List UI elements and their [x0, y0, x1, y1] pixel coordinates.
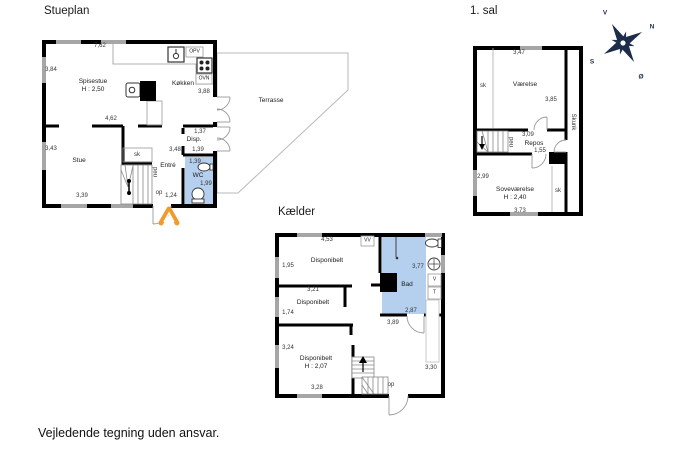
compass-south-label: S: [590, 59, 594, 66]
appliance-label-vv: VV: [364, 239, 371, 244]
room-label-wc: WC: [193, 173, 204, 180]
room-height-label: H : 2,40: [504, 195, 527, 202]
room-label-sovevaerelse: Soveværelse: [496, 187, 534, 194]
room-label-bad: Bad: [401, 282, 413, 289]
closet-label-sk: sk: [134, 152, 140, 158]
appliance-label-opv: OPV: [189, 50, 200, 55]
dim-label: 3,84: [45, 67, 57, 73]
dim-label: 4,53: [321, 237, 333, 243]
room-label-vaerelse: Værelse: [513, 82, 537, 89]
dim-label: 3,24: [282, 345, 294, 351]
chimney: [380, 273, 397, 292]
dim-label: 3,77: [412, 264, 424, 270]
dim-label: 3,43: [45, 146, 57, 152]
floorplan-drawing: Stueplan 1. sal Kælder Vejledende tegnin…: [0, 0, 687, 457]
dim-label: 3,09: [522, 132, 534, 138]
stairs-label-ned: ned: [153, 167, 159, 177]
dim-label: 3,85: [545, 97, 557, 103]
stairs-label-op: op: [388, 382, 395, 388]
room-label-disponibelt: Disponibelt: [311, 258, 343, 265]
room-label-repos: Repos: [525, 141, 544, 148]
compass-rose-icon: [593, 13, 653, 73]
room-height-label: H : 2,07: [305, 364, 328, 371]
stueplan-stairs: [121, 165, 152, 204]
dim-label: 7,62: [94, 43, 106, 49]
dim-label: 3,21: [307, 287, 319, 293]
compass-west-label: V: [603, 10, 607, 17]
dim-label: 2,99: [477, 174, 489, 180]
compass-north-label: N: [650, 24, 655, 31]
entrance-arrow-icon: [161, 209, 177, 223]
stairs-label-op: op: [156, 190, 163, 196]
dim-label: 2,87: [405, 308, 417, 314]
room-label-spisestue: Spisestue: [79, 79, 108, 86]
dim-label: 1,55: [534, 148, 546, 154]
closet-label-sk: sk: [480, 83, 486, 89]
appliance-label-t: T: [433, 291, 436, 296]
dim-label: 3,39: [76, 193, 88, 199]
disclaimer-text: Vejledende tegning uden ansvar.: [38, 426, 219, 440]
room-label-koekken: Køkken: [172, 81, 194, 88]
stairs-label-ned: ned: [509, 137, 515, 147]
basement-title: Kælder: [278, 206, 315, 218]
stueplan-title: Stueplan: [44, 5, 89, 17]
dim-label: 1,99: [200, 181, 212, 187]
dim-label: 3,88: [198, 89, 210, 95]
room-label-entre: Entré: [160, 163, 176, 170]
room-label-stue: Stue: [72, 158, 85, 165]
basement-plan: [275, 233, 445, 415]
dim-label: 3,47: [513, 50, 525, 56]
chimney: [549, 152, 566, 164]
dim-label: 1,95: [282, 263, 294, 269]
appliance-label-ovn: OVN: [199, 77, 210, 82]
dim-label: 3,28: [311, 385, 323, 391]
floorplan-svg: [0, 0, 687, 457]
firstfloor-title: 1. sal: [470, 5, 498, 17]
lightwell: [426, 300, 439, 362]
dim-label: 4,62: [105, 116, 117, 122]
dim-label: 1,24: [165, 193, 177, 199]
room-height-label: H : 2,50: [82, 87, 105, 94]
room-label-terrasse: Terrasse: [259, 98, 284, 105]
dim-label: 3,73: [514, 208, 526, 214]
closet-label-sk: sk: [555, 188, 561, 194]
dim-label: 1,39: [189, 159, 201, 165]
dim-label: 3,48: [169, 147, 181, 153]
room-label-disponibelt: Disponibelt: [300, 356, 332, 363]
kitchen-sink-icon: [168, 47, 184, 62]
room-label-disp: Disp.: [187, 137, 202, 144]
room-label-skunk: Skunk: [570, 114, 576, 131]
dim-label: 1,74: [282, 310, 294, 316]
compass-east-label: Ø: [638, 74, 643, 81]
terrace-outline: [217, 53, 348, 193]
toilet-icon: [426, 239, 439, 247]
dim-label: 3,30: [425, 365, 437, 371]
dim-label: 3,89: [387, 320, 399, 326]
dim-label: 1,37: [194, 129, 206, 135]
wc-toilet-icon: [192, 188, 204, 200]
room-label-disponibelt: Disponibelt: [297, 300, 329, 307]
dim-label: 1,39: [192, 147, 204, 153]
appliance-label-v: V: [433, 278, 436, 283]
